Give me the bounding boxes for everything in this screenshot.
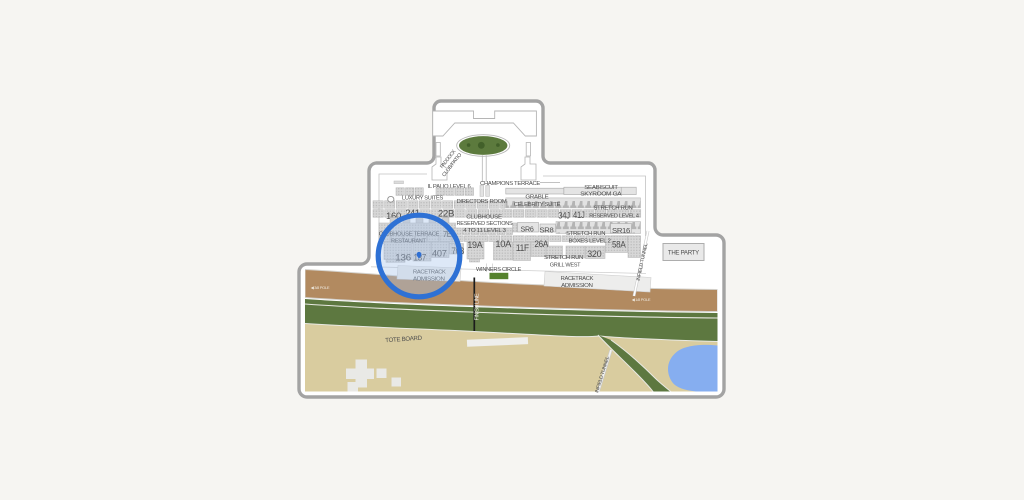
svg-text:34J: 34J: [558, 211, 570, 221]
svg-text:10A: 10A: [495, 239, 512, 249]
svg-text:SR6: SR6: [521, 225, 534, 234]
svg-text:GRILL WEST: GRILL WEST: [550, 262, 581, 268]
svg-text:THE PARTY: THE PARTY: [668, 250, 700, 257]
svg-text:DIRECTORS ROOM: DIRECTORS ROOM: [457, 199, 508, 205]
svg-text:STRETCH RUN: STRETCH RUN: [594, 206, 633, 212]
svg-text:SR8: SR8: [540, 225, 554, 234]
svg-text:ADMISSION: ADMISSION: [561, 283, 593, 289]
svg-text:BOXES LEVEL 2: BOXES LEVEL 2: [569, 238, 611, 244]
svg-text:◀ 1/8 POLE: ◀ 1/8 POLE: [632, 297, 651, 302]
svg-text:STRETCH RUN: STRETCH RUN: [566, 231, 605, 237]
svg-text:◀ 3/8 POLE: ◀ 3/8 POLE: [311, 285, 330, 290]
svg-text:GRABLE: GRABLE: [525, 194, 549, 200]
svg-text:FINISH LINE: FINISH LINE: [475, 293, 481, 321]
svg-text:58A: 58A: [612, 240, 627, 250]
svg-text:4 TO 11 LEVEL 3: 4 TO 11 LEVEL 3: [463, 228, 506, 234]
svg-text:11F: 11F: [516, 243, 530, 253]
svg-text:RACETRACK: RACETRACK: [561, 276, 594, 282]
svg-text:SKYROOM GA: SKYROOM GA: [580, 191, 622, 197]
svg-text:22B: 22B: [438, 209, 454, 219]
svg-text:CELEBRITY SUITE: CELEBRITY SUITE: [514, 202, 561, 208]
svg-text:320: 320: [587, 249, 601, 259]
svg-text:RESERVED SECTIONS: RESERVED SECTIONS: [457, 221, 513, 227]
svg-text:41J: 41J: [573, 210, 585, 220]
svg-text:19A: 19A: [467, 240, 483, 250]
svg-text:WINNERS CIRCLE: WINNERS CIRCLE: [476, 267, 521, 273]
svg-text:SR16: SR16: [612, 226, 630, 235]
svg-text:LUXURY SUITES: LUXURY SUITES: [402, 196, 444, 202]
svg-text:CLUBHOUSE: CLUBHOUSE: [466, 214, 502, 220]
svg-text:STRETCH RUN: STRETCH RUN: [544, 255, 583, 261]
svg-text:SEABISCUIT: SEABISCUIT: [584, 185, 618, 191]
svg-text:RESERVED LEVEL 4: RESERVED LEVEL 4: [589, 213, 639, 219]
svg-text:26A: 26A: [534, 239, 549, 249]
